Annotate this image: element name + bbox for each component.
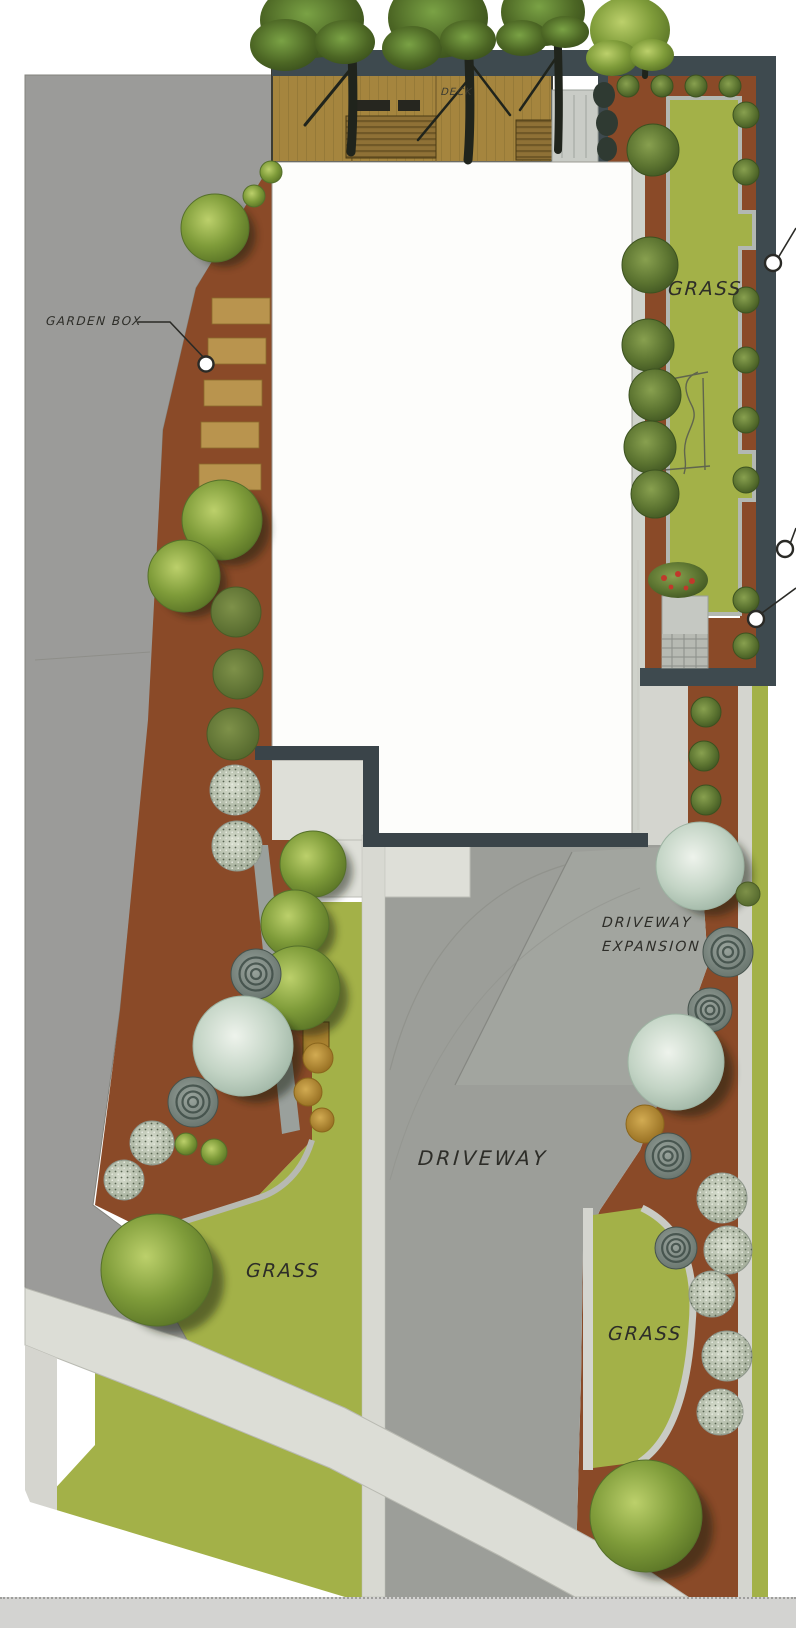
shrub-variegated	[212, 821, 262, 871]
shrub-round	[213, 649, 263, 699]
flower-planter	[648, 562, 708, 598]
shrub-hedge	[685, 75, 707, 97]
callout-marker-garden-box	[199, 357, 214, 372]
shrub-spiral	[703, 927, 753, 977]
shrub-variegated	[130, 1121, 174, 1165]
shrub-spiral	[645, 1133, 691, 1179]
shrub-hedge	[733, 159, 759, 185]
shrub-variegated	[210, 765, 260, 815]
house-footprint	[255, 162, 648, 847]
shrub-hedge	[733, 102, 759, 128]
house-side-walk-notch	[272, 760, 375, 840]
tree-evergreen	[627, 124, 679, 176]
shrub-hedge	[733, 587, 759, 613]
shrub-accent	[310, 1108, 334, 1132]
shrub-hedge	[719, 75, 741, 97]
east-grass-strip	[752, 686, 768, 1597]
shrub-round	[736, 882, 760, 906]
shrub-variegated	[704, 1226, 752, 1274]
shrub-spiral	[231, 949, 281, 999]
label-grass-backyard: GRASS	[667, 278, 743, 300]
grass-round-edging-strip	[583, 1208, 593, 1470]
shrub-variegated	[697, 1173, 747, 1223]
deck-bench	[356, 100, 390, 111]
tree-deciduous	[260, 161, 282, 183]
label-driveway-expansion-1: DRIVEWAY	[601, 915, 692, 931]
deck-bench-2	[398, 100, 420, 111]
label-grass-front-left: GRASS	[245, 1260, 321, 1282]
label-deck: DECK	[441, 87, 473, 98]
shrub-accent	[303, 1043, 333, 1073]
page-bottom-bar	[0, 1597, 796, 1628]
tree-evergreen	[624, 421, 676, 473]
shrub-hedge	[691, 697, 721, 727]
shrub-hedge	[691, 785, 721, 815]
shrub-variegated	[697, 1389, 743, 1435]
label-driveway-expansion-2: EXPANSION	[601, 939, 701, 955]
label-garden-box: GARDEN BOX	[46, 314, 143, 328]
east-walk-strip	[738, 686, 752, 1597]
tree-evergreen	[622, 319, 674, 371]
tree-deciduous	[243, 185, 265, 207]
site-plan-drawing	[0, 0, 796, 1628]
side-walk-lower	[640, 686, 688, 846]
right-margin-lower	[768, 686, 796, 1597]
shrub-round	[207, 708, 259, 760]
shrub-spiral	[655, 1227, 697, 1269]
tree-evergreen	[631, 470, 679, 518]
callout-marker-right-lower	[748, 611, 764, 627]
shrub-hedge	[733, 633, 759, 659]
shrub-variegated	[689, 1271, 735, 1317]
shrub-hedge	[651, 75, 673, 97]
shrub-hedge	[733, 407, 759, 433]
label-driveway: DRIVEWAY	[417, 1146, 549, 1170]
tree-evergreen	[629, 369, 681, 421]
shrub-hedge	[617, 75, 639, 97]
shrub-spiral	[168, 1077, 218, 1127]
shrub-accent	[294, 1078, 322, 1106]
tree-deciduous	[201, 1139, 227, 1165]
shrub-hedge	[733, 347, 759, 373]
label-grass-front-right: GRASS	[607, 1323, 683, 1345]
tree-deciduous	[175, 1133, 197, 1155]
shrub-hedge	[733, 467, 759, 493]
shrub-variegated	[104, 1160, 144, 1200]
site-plan-canvas: GARDEN BOX DECK GRASS DRIVEWAY EXPANSION…	[0, 0, 796, 1628]
shrub-variegated	[702, 1331, 752, 1381]
callout-marker-right-middle	[777, 541, 793, 557]
shrub-hedge	[689, 741, 719, 771]
callout-marker-right-upper	[765, 255, 781, 271]
shrub-round	[211, 587, 261, 637]
paver-pattern	[662, 634, 708, 668]
